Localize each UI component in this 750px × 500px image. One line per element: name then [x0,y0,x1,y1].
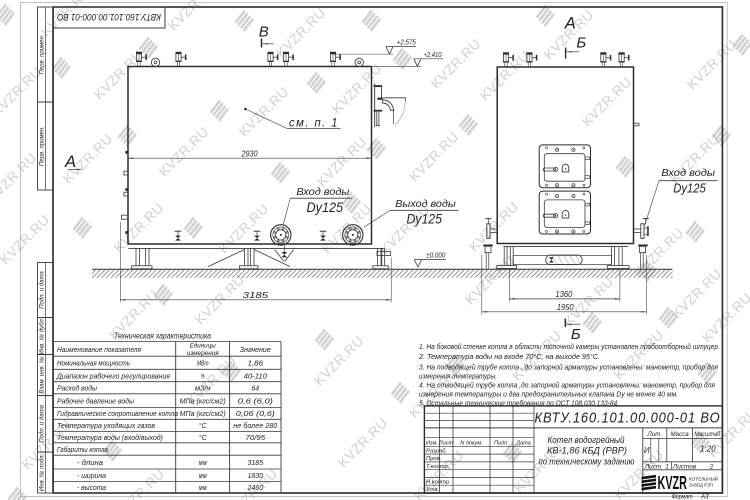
svg-text:1:20: 1:20 [700,444,716,453]
svg-text:1830: 1830 [248,473,264,480]
svg-text:измерения температуры.: измерения температуры. [419,372,497,381]
svg-text:Значение: Значение [240,347,271,354]
svg-text:KVZR.RU: KVZR.RU [684,37,739,92]
svg-text:Температура воды (вход/выход): Температура воды (вход/выход) [57,434,163,442]
svg-text:KVZR.RU: KVZR.RU [273,5,328,60]
svg-text:не более 280: не более 280 [233,422,277,430]
svg-text:Перв. примен.: Перв. примен. [40,35,46,75]
svg-text:по техническому заданию: по техническому заданию [539,456,635,466]
svg-text:°С: °С [199,422,208,430]
svg-text:0,06 (0,6): 0,06 (0,6) [236,411,275,418]
svg-text:КВТУ.160.101.00.000-01 ВО: КВТУ.160.101.00.000-01 ВО [57,12,161,22]
svg-text:- высота: - высота [77,485,106,492]
svg-text:Диапазон рабочего регулировани: Диапазон рабочего регулирования [56,372,170,380]
svg-text:4. На отводящей трубе котла ,: 4. На отводящей трубе котла ,до запорной… [419,380,715,389]
svg-text:МПа (кгс/см2): МПа (кгс/см2) [180,398,226,405]
svg-text:А: А [564,14,576,32]
svg-text:3185: 3185 [248,460,264,467]
svg-text:KVZR.RU: KVZR.RU [91,47,146,102]
svg-text:Т.контр.: Т.контр. [426,464,449,470]
svg-text:Dy125: Dy125 [406,211,442,226]
svg-text:Перв. примен.: Перв. примен. [40,126,46,166]
svg-text:64: 64 [251,386,259,393]
svg-text:KVZR.RU: KVZR.RU [165,0,220,34]
svg-text:1: 1 [665,463,669,470]
svg-text:Температура уходящих газов: Температура уходящих газов [57,422,155,430]
svg-text:В: В [259,24,269,41]
svg-text:Взам. инв. №: Взам. инв. № [39,356,46,394]
svg-text:KVZR.RU: KVZR.RU [111,200,166,255]
svg-text:мм: мм [199,460,207,467]
svg-text:КВ-1,86 КБД (РВР): КВ-1,86 КБД (РВР) [547,446,627,456]
svg-text:Наименование показателя: Наименование показателя [57,347,141,354]
svg-text:Инв. № подл.: Инв. № подл. [39,454,46,491]
svg-text:1. На боковой стенке котла в: 1. На боковой стенке котла в области топ… [419,342,718,351]
svg-text:- длина: - длина [77,459,103,467]
svg-text:см. п. 1: см. п. 1 [289,117,339,129]
svg-text:Рабочее давление воды: Рабочее давление воды [57,397,135,405]
svg-text:Гидравлическое сопротивление к: Гидравлическое сопротивление котла [57,410,178,418]
svg-text:Формат: Формат [672,494,693,500]
svg-text:2930: 2930 [241,148,258,158]
svg-text:КОТЕЛЬНЫЙ: КОТЕЛЬНЫЙ [689,475,718,483]
svg-text:Лист: Лист [644,463,662,470]
svg-text:KVZR: KVZR [658,472,688,493]
svg-text:2. Температура воды на входе: 2. Температура воды на входе 70°С, на вы… [418,352,600,361]
svg-text:Единицы: Единицы [190,342,216,350]
svg-text:+2.575: +2.575 [397,40,416,47]
svg-text:Подп. и дата: Подп. и дата [40,271,46,309]
svg-text:измерения температуры и два пр: измерения температуры и два предохраните… [419,390,678,399]
svg-text:Н.контр.: Н.контр. [426,479,451,485]
svg-text:70/95: 70/95 [246,435,266,442]
svg-text:Техническая характеристика: Техническая характеристика [114,332,212,341]
svg-text:И: И [644,446,650,455]
svg-text:Dy125: Dy125 [673,180,706,195]
svg-text:А: А [64,153,76,171]
svg-text:0,6 (6,0): 0,6 (6,0) [238,398,273,405]
svg-text:Масштаб: Масштаб [694,431,720,438]
svg-text:KVZR.RU: KVZR.RU [335,415,390,470]
svg-text:1950: 1950 [557,303,574,312]
svg-text:KVZR.RU: KVZR.RU [112,466,167,500]
svg-text:МПа (кгс/см2): МПа (кгс/см2) [180,411,226,418]
svg-text:Габариты котла: Габариты котла [57,446,108,454]
svg-text:КВТУ.160.101.00.000-01 ВО: КВТУ.160.101.00.000-01 ВО [535,410,721,426]
svg-text:Подп. и дата: Подп. и дата [40,404,46,442]
svg-text:KVZR.RU: KVZR.RU [314,134,369,189]
svg-text:KVZR.RU: KVZR.RU [406,129,461,184]
svg-text:Подп.: Подп. [494,440,509,446]
svg-text:3. На подводящей трубе котла: 3. На подводящей трубе котла , до запорн… [419,362,718,371]
svg-text:мм: мм [199,485,207,492]
svg-text:Б: Б [571,326,581,343]
svg-text:1,86: 1,86 [248,361,264,368]
svg-text:Масса: Масса [670,431,689,438]
svg-text:А3: А3 [700,494,709,500]
svg-text:KVZR.RU: KVZR.RU [579,74,634,129]
svg-text:2: 2 [709,463,714,470]
svg-text:Пров.: Пров. [426,456,441,462]
svg-text:Вход воды: Вход воды [296,186,349,198]
svg-text:%: % [201,373,205,380]
svg-text:KVZR.RU: KVZR.RU [156,124,211,179]
svg-text:KVZR.RU: KVZR.RU [225,466,280,500]
svg-text:Инв. № дубл.: Инв. № дубл. [39,318,46,355]
svg-text:Расход воды: Расход воды [57,385,98,393]
svg-text:Дата: Дата [515,440,531,446]
svg-text:1360: 1360 [555,290,572,299]
svg-text:KVZR.RU: KVZR.RU [0,150,40,205]
svg-text:Лит.: Лит. [647,431,663,438]
svg-text:ЗАВОД РЭП: ЗАВОД РЭП [689,482,713,488]
svg-text:Утв.: Утв. [425,487,439,493]
svg-text:измерения: измерения [187,350,219,357]
svg-text:Выход воды: Выход воды [395,198,456,210]
svg-text:Вход воды: Вход воды [661,167,715,179]
svg-text:KVZR.RU: KVZR.RU [611,327,666,382]
svg-text:KVZR.RU: KVZR.RU [428,36,483,91]
svg-text:Б: Б [576,34,586,51]
svg-text:Листов: Листов [672,463,697,470]
svg-text:±0.000: ±0.000 [426,253,445,260]
svg-text:KVZR.RU: KVZR.RU [0,212,53,267]
svg-text:2460: 2460 [246,485,263,492]
svg-text:KVZR.RU: KVZR.RU [329,61,384,116]
svg-text:Лист: Лист [438,440,454,446]
svg-text:KVZR.RU: KVZR.RU [669,266,724,321]
svg-text:Dy125: Dy125 [307,200,344,215]
svg-text:3185: 3185 [243,290,269,300]
svg-text:Котел водогрейный: Котел водогрейный [548,435,625,445]
svg-text:Номинальная мощность: Номинальная мощность [57,361,130,368]
svg-text:KVZR.RU: KVZR.RU [477,48,532,103]
svg-text:KVZR.RU: KVZR.RU [699,290,750,345]
svg-text:мм: мм [199,473,207,480]
svg-text:- ширина: - ширина [77,473,106,480]
svg-text:°С: °С [199,434,208,442]
svg-text:40-110: 40-110 [244,373,268,380]
svg-text:МВт: МВт [197,361,209,368]
svg-text:м3/ч: м3/ч [195,386,211,393]
svg-text:N докум.: N докум. [460,440,483,446]
svg-text:Изм.: Изм. [426,440,438,446]
svg-text:+2.410: +2.410 [424,52,442,59]
svg-text:Разраб.: Разраб. [426,448,447,454]
svg-text:KVZR.RU: KVZR.RU [236,84,291,139]
